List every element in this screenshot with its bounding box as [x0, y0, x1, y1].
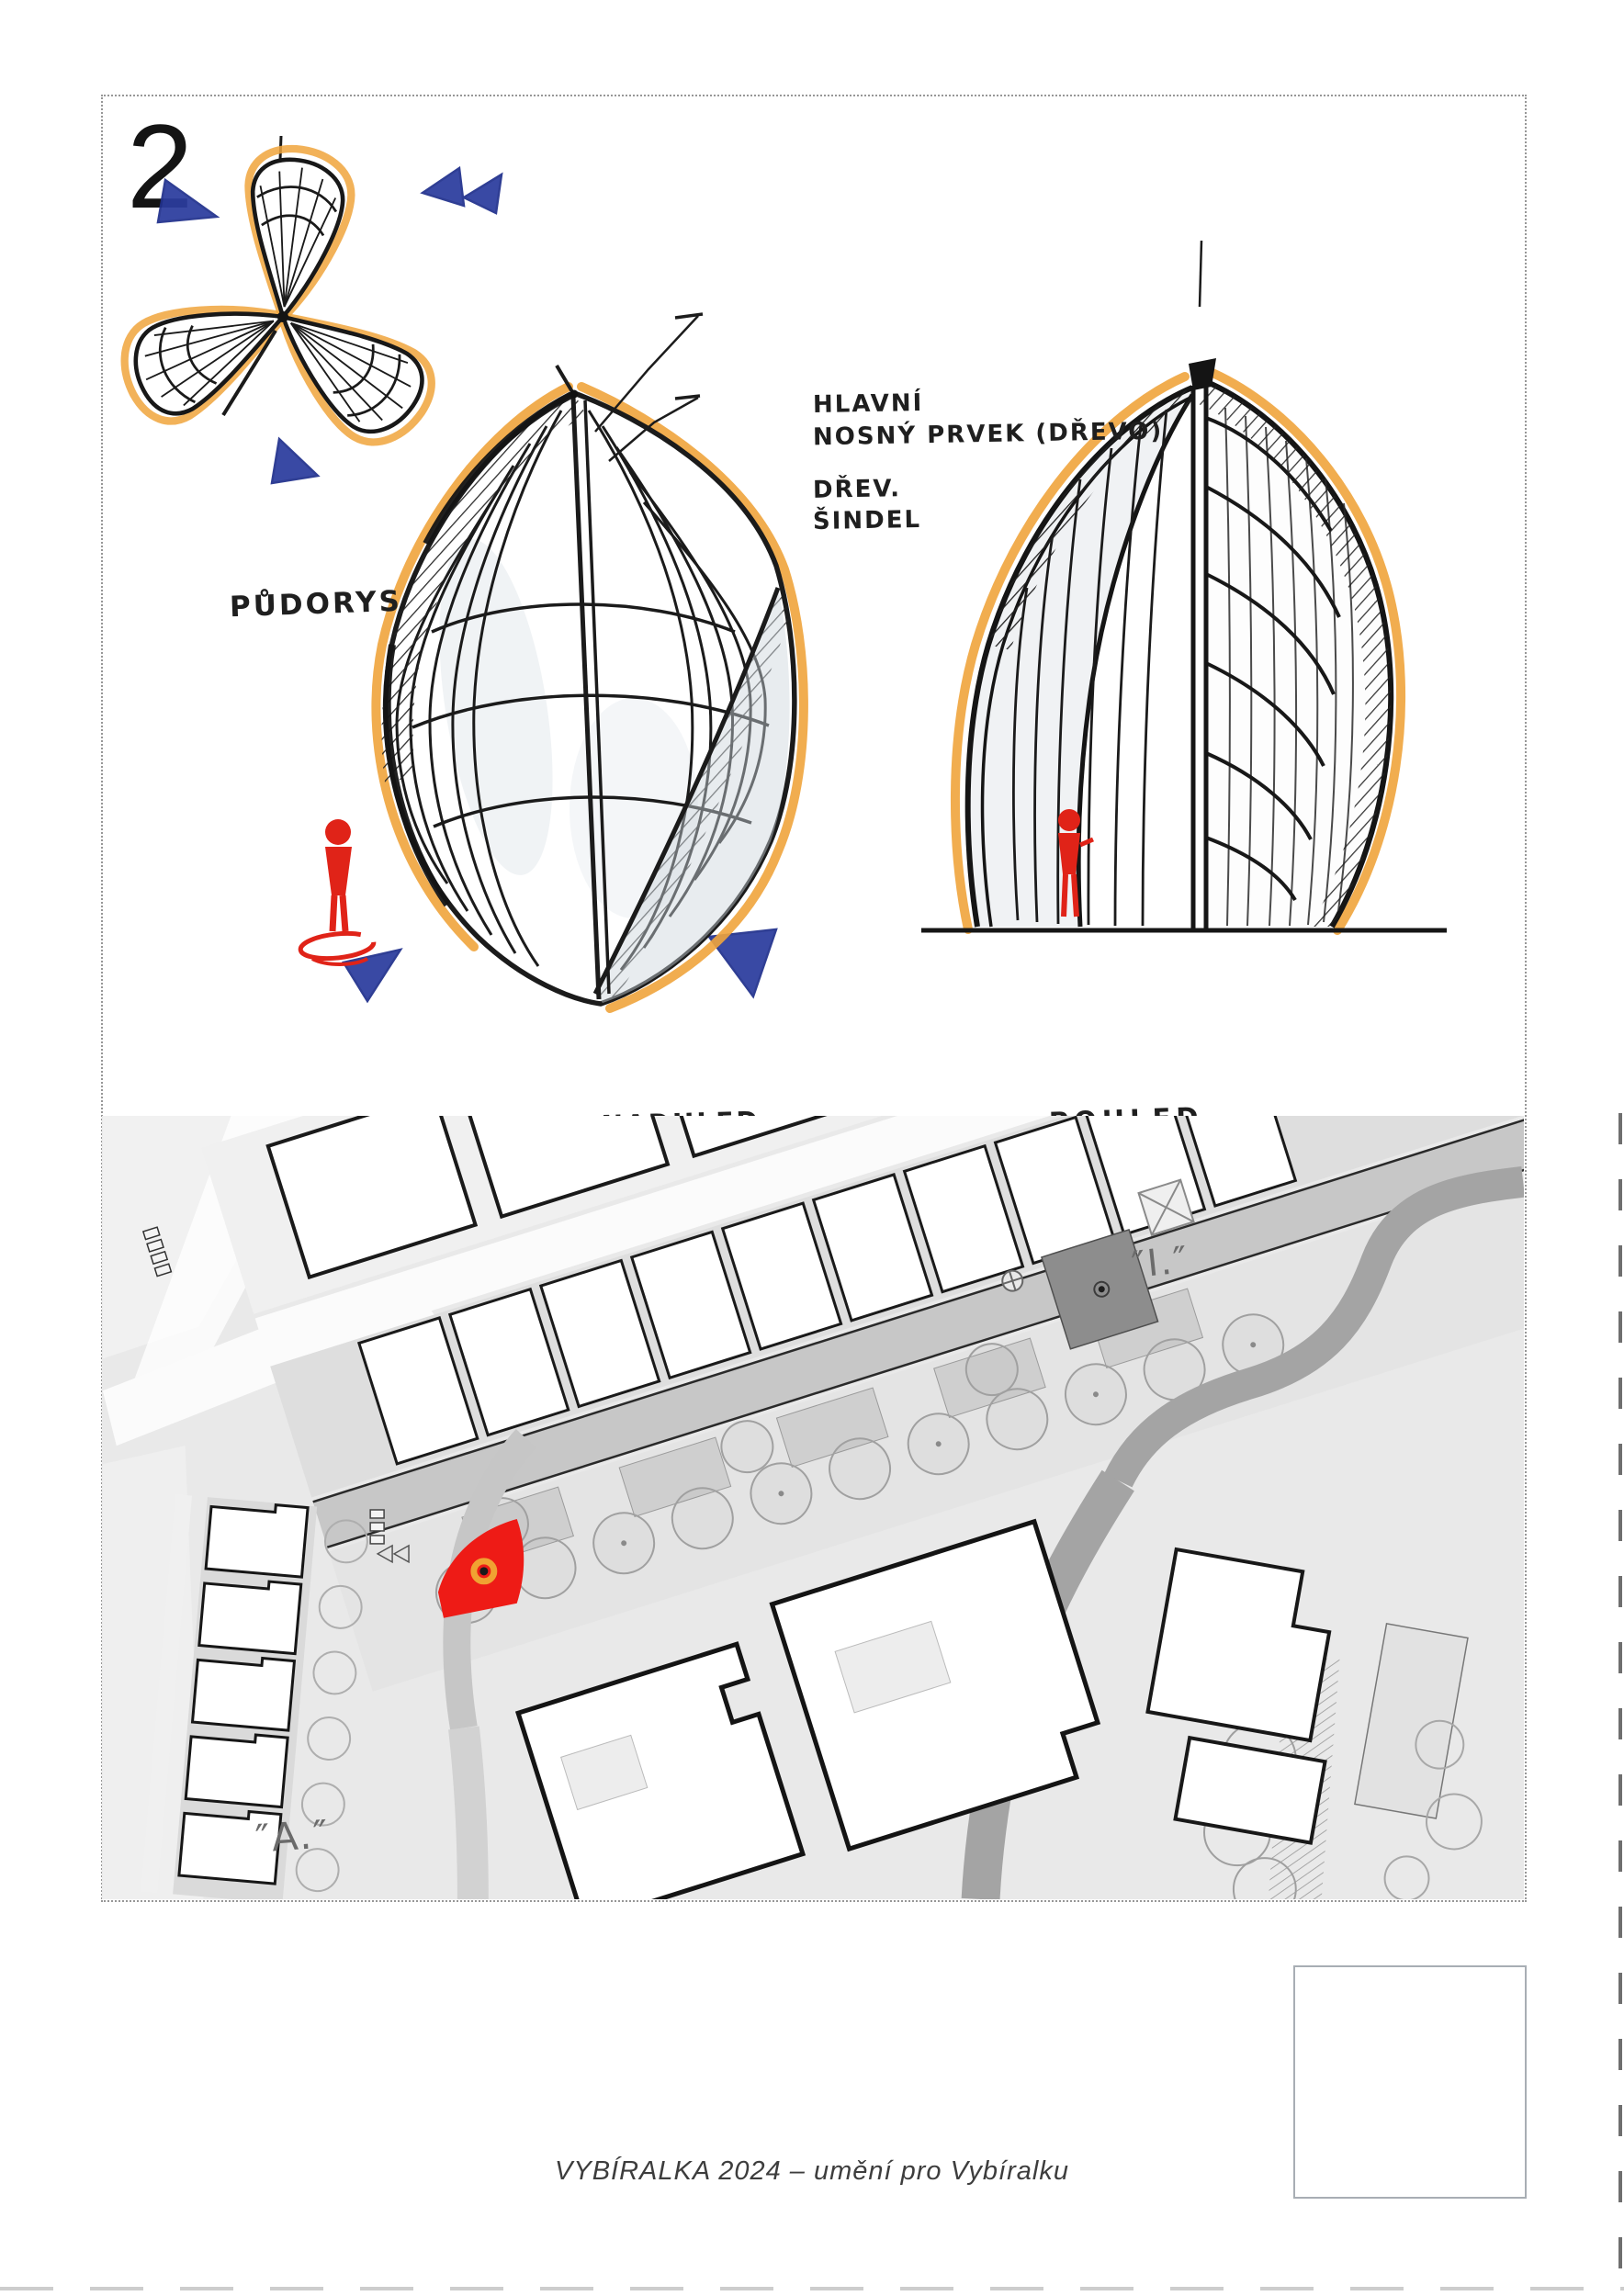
person-scale-figure — [299, 819, 375, 964]
plan-label: PŮDORYS — [229, 585, 402, 625]
annotation-cladding-line2: ŠINDEL — [813, 506, 922, 535]
site-plan-map — [102, 1116, 1524, 1899]
presentation-page: 2 — [0, 0, 1624, 2296]
block-a-label: ″A.″ — [254, 1811, 331, 1862]
annotation-cladding-line1: DŘEV. — [813, 475, 902, 504]
plan-sketch — [108, 136, 448, 461]
scan-edge-ticks — [1618, 1113, 1622, 2296]
empty-frame-box — [1293, 1965, 1527, 2199]
perspective-sketch — [376, 366, 804, 1008]
elevation-sketch — [921, 241, 1447, 930]
annotation-structure-line1: HLAVNÍ — [813, 389, 924, 419]
street-i-label: ″I.″ — [1130, 1239, 1191, 1287]
scan-bottom-dashes — [0, 2287, 1624, 2290]
